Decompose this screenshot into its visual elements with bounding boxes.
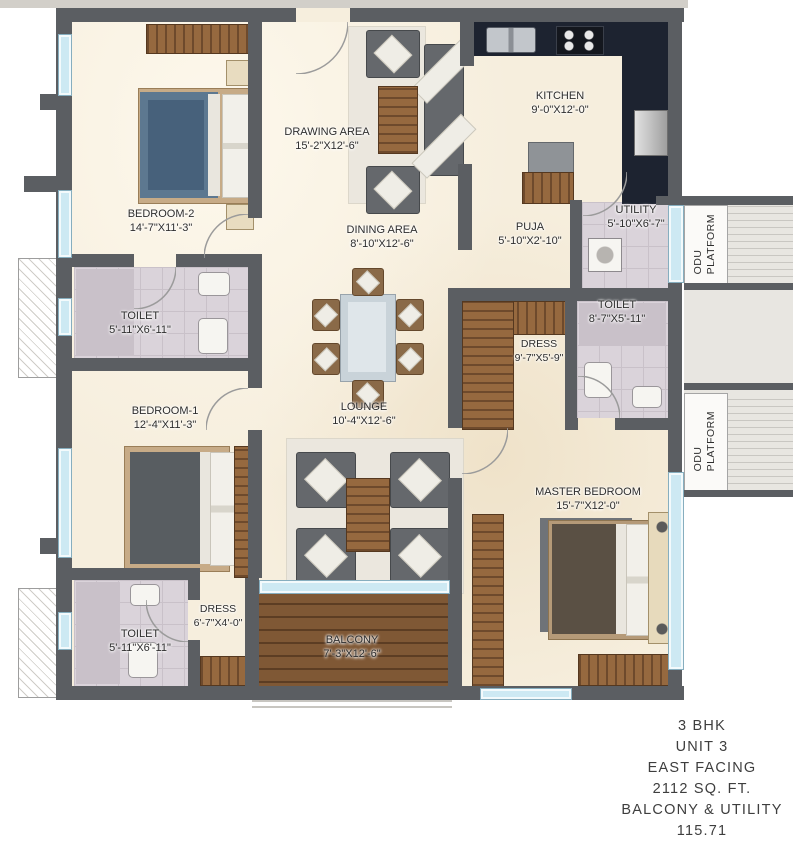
label-kitchen: KITCHEN9'-0"X12'-0": [531, 89, 588, 117]
bed-pillows: [210, 452, 236, 566]
washbasin: [198, 272, 230, 296]
window: [58, 190, 72, 258]
armchair: [390, 528, 450, 584]
label-odu-platform-top: ODUPLATFORM: [684, 205, 726, 283]
wall-ledge: [24, 176, 62, 192]
wall: [448, 301, 462, 428]
coffee-table: [378, 86, 418, 154]
armchair: [390, 452, 450, 508]
wall: [62, 254, 134, 267]
door-arc: [578, 376, 620, 418]
summary-line: 2112 SQ. FT.: [612, 779, 792, 800]
platform-hatch: [726, 393, 793, 490]
wall: [56, 8, 684, 22]
label-puja: PUJA5'-10"X2'-10": [498, 220, 561, 248]
dining-chair: [396, 299, 424, 331]
wall: [188, 568, 200, 600]
summary-line: UNIT 3: [612, 737, 792, 758]
cushion: [398, 347, 421, 370]
cushion: [374, 171, 413, 210]
door-arc: [134, 267, 176, 309]
kitchen-platform: [528, 142, 574, 174]
cushion: [398, 303, 421, 326]
sink: [486, 27, 536, 53]
label-bedroom1: BEDROOM-112'-4"X11'-3": [132, 404, 199, 432]
label-balcony: BALCONY7'-3"X12'-6": [323, 633, 380, 661]
window: [58, 612, 72, 650]
bed-blanket: [130, 452, 200, 564]
cushion: [314, 347, 337, 370]
cushion: [398, 458, 442, 502]
label-dress-bottom: DRESS6'-7"X4'-0": [194, 602, 243, 630]
door-arc: [204, 214, 248, 258]
wall: [62, 568, 188, 580]
dining-chair: [396, 343, 424, 375]
wall-ledge: [40, 94, 62, 110]
wall: [188, 640, 200, 700]
label-master-bedroom: MASTER BEDROOM15'-7"X12'-0": [535, 485, 641, 513]
label-dining-area: DINING AREA8'-10"X12'-6": [347, 223, 418, 251]
unit-summary: 3 BHK UNIT 3 EAST FACING 2112 SQ. FT. BA…: [612, 716, 792, 842]
wardrobe: [472, 514, 504, 696]
wall: [615, 418, 682, 430]
cushion: [304, 458, 348, 502]
dining-chair: [312, 343, 340, 375]
wall: [248, 267, 262, 388]
dining-chair: [312, 299, 340, 331]
platform-hatch: [726, 205, 793, 283]
sofa: [424, 44, 464, 176]
label-toilet-left: TOILET5'-11"X6'-11": [109, 309, 171, 337]
wardrobe: [146, 24, 256, 54]
label-odu-platform-bottom: ODUPLATFORM: [684, 393, 726, 490]
window: [668, 205, 684, 283]
wardrobe: [462, 301, 514, 430]
wall: [684, 383, 793, 390]
summary-line: BALCONY & UTILITY: [612, 800, 792, 821]
door-arc: [462, 428, 508, 474]
cushion: [398, 534, 442, 578]
label-lounge: LOUNGE10'-4"X12'-6": [332, 400, 395, 428]
summary-line: 115.71: [612, 821, 792, 842]
dining-chair: [352, 268, 384, 296]
wall: [448, 478, 462, 700]
bed-sheet: [200, 452, 210, 564]
wall: [56, 8, 72, 700]
window: [480, 688, 572, 700]
coffee-table: [346, 478, 390, 552]
outside-top-band: [0, 0, 688, 8]
wall: [248, 430, 262, 578]
cabinet: [522, 172, 574, 204]
cushion: [314, 303, 337, 326]
wc: [198, 318, 228, 354]
wall: [565, 418, 578, 430]
floor-plan: BEDROOM-214'-7"X11'-3" DRAWING AREA15'-2…: [0, 0, 793, 852]
summary-line: 3 BHK: [612, 716, 792, 737]
wall: [62, 358, 262, 371]
balcony-railing: [252, 700, 452, 712]
wall: [56, 686, 684, 700]
summary-line: EAST FACING: [612, 758, 792, 779]
wardrobe: [200, 656, 248, 686]
label-utility: UTILITY5'-10"X6'-7": [607, 203, 664, 231]
armchair: [366, 30, 420, 78]
cushion: [304, 534, 348, 578]
cushion: [374, 35, 413, 74]
dining-table-top: [348, 302, 386, 372]
window: [58, 298, 72, 336]
washing-machine: [588, 238, 622, 272]
window: [668, 472, 684, 670]
label-drawing-area: DRAWING AREA15'-2"X12'-6": [284, 125, 369, 153]
wall: [570, 200, 582, 290]
wall: [448, 288, 682, 301]
bed-sheet: [208, 94, 220, 196]
wall: [684, 283, 793, 290]
wall: [656, 196, 793, 205]
label-toilet-bottom: TOILET5'-11"X6'-11": [109, 627, 171, 655]
door-arc: [296, 22, 348, 74]
wall: [245, 578, 259, 700]
wall: [248, 22, 262, 218]
entry-opening: [296, 8, 350, 22]
label-dress-right: DRESS9'-7"X5'-9": [515, 337, 564, 365]
refrigerator: [634, 110, 668, 156]
window: [58, 34, 72, 96]
bed-blanket: [552, 524, 618, 634]
cushion: [356, 270, 379, 293]
armchair: [366, 166, 420, 214]
bed-blanket-inner: [148, 100, 204, 190]
stove: [556, 26, 604, 55]
window: [58, 448, 72, 558]
wall: [460, 22, 474, 66]
wall: [684, 490, 793, 497]
dresser: [578, 654, 678, 686]
label-toilet-right: TOILET8'-7"X5'-11": [589, 298, 645, 326]
bed-sheet: [616, 524, 626, 634]
wall: [565, 301, 577, 418]
door-arc: [206, 388, 248, 430]
washbasin: [632, 386, 662, 408]
sliding-window: [259, 580, 450, 594]
label-bedroom2: BEDROOM-214'-7"X11'-3": [128, 207, 195, 235]
wall: [458, 164, 472, 250]
